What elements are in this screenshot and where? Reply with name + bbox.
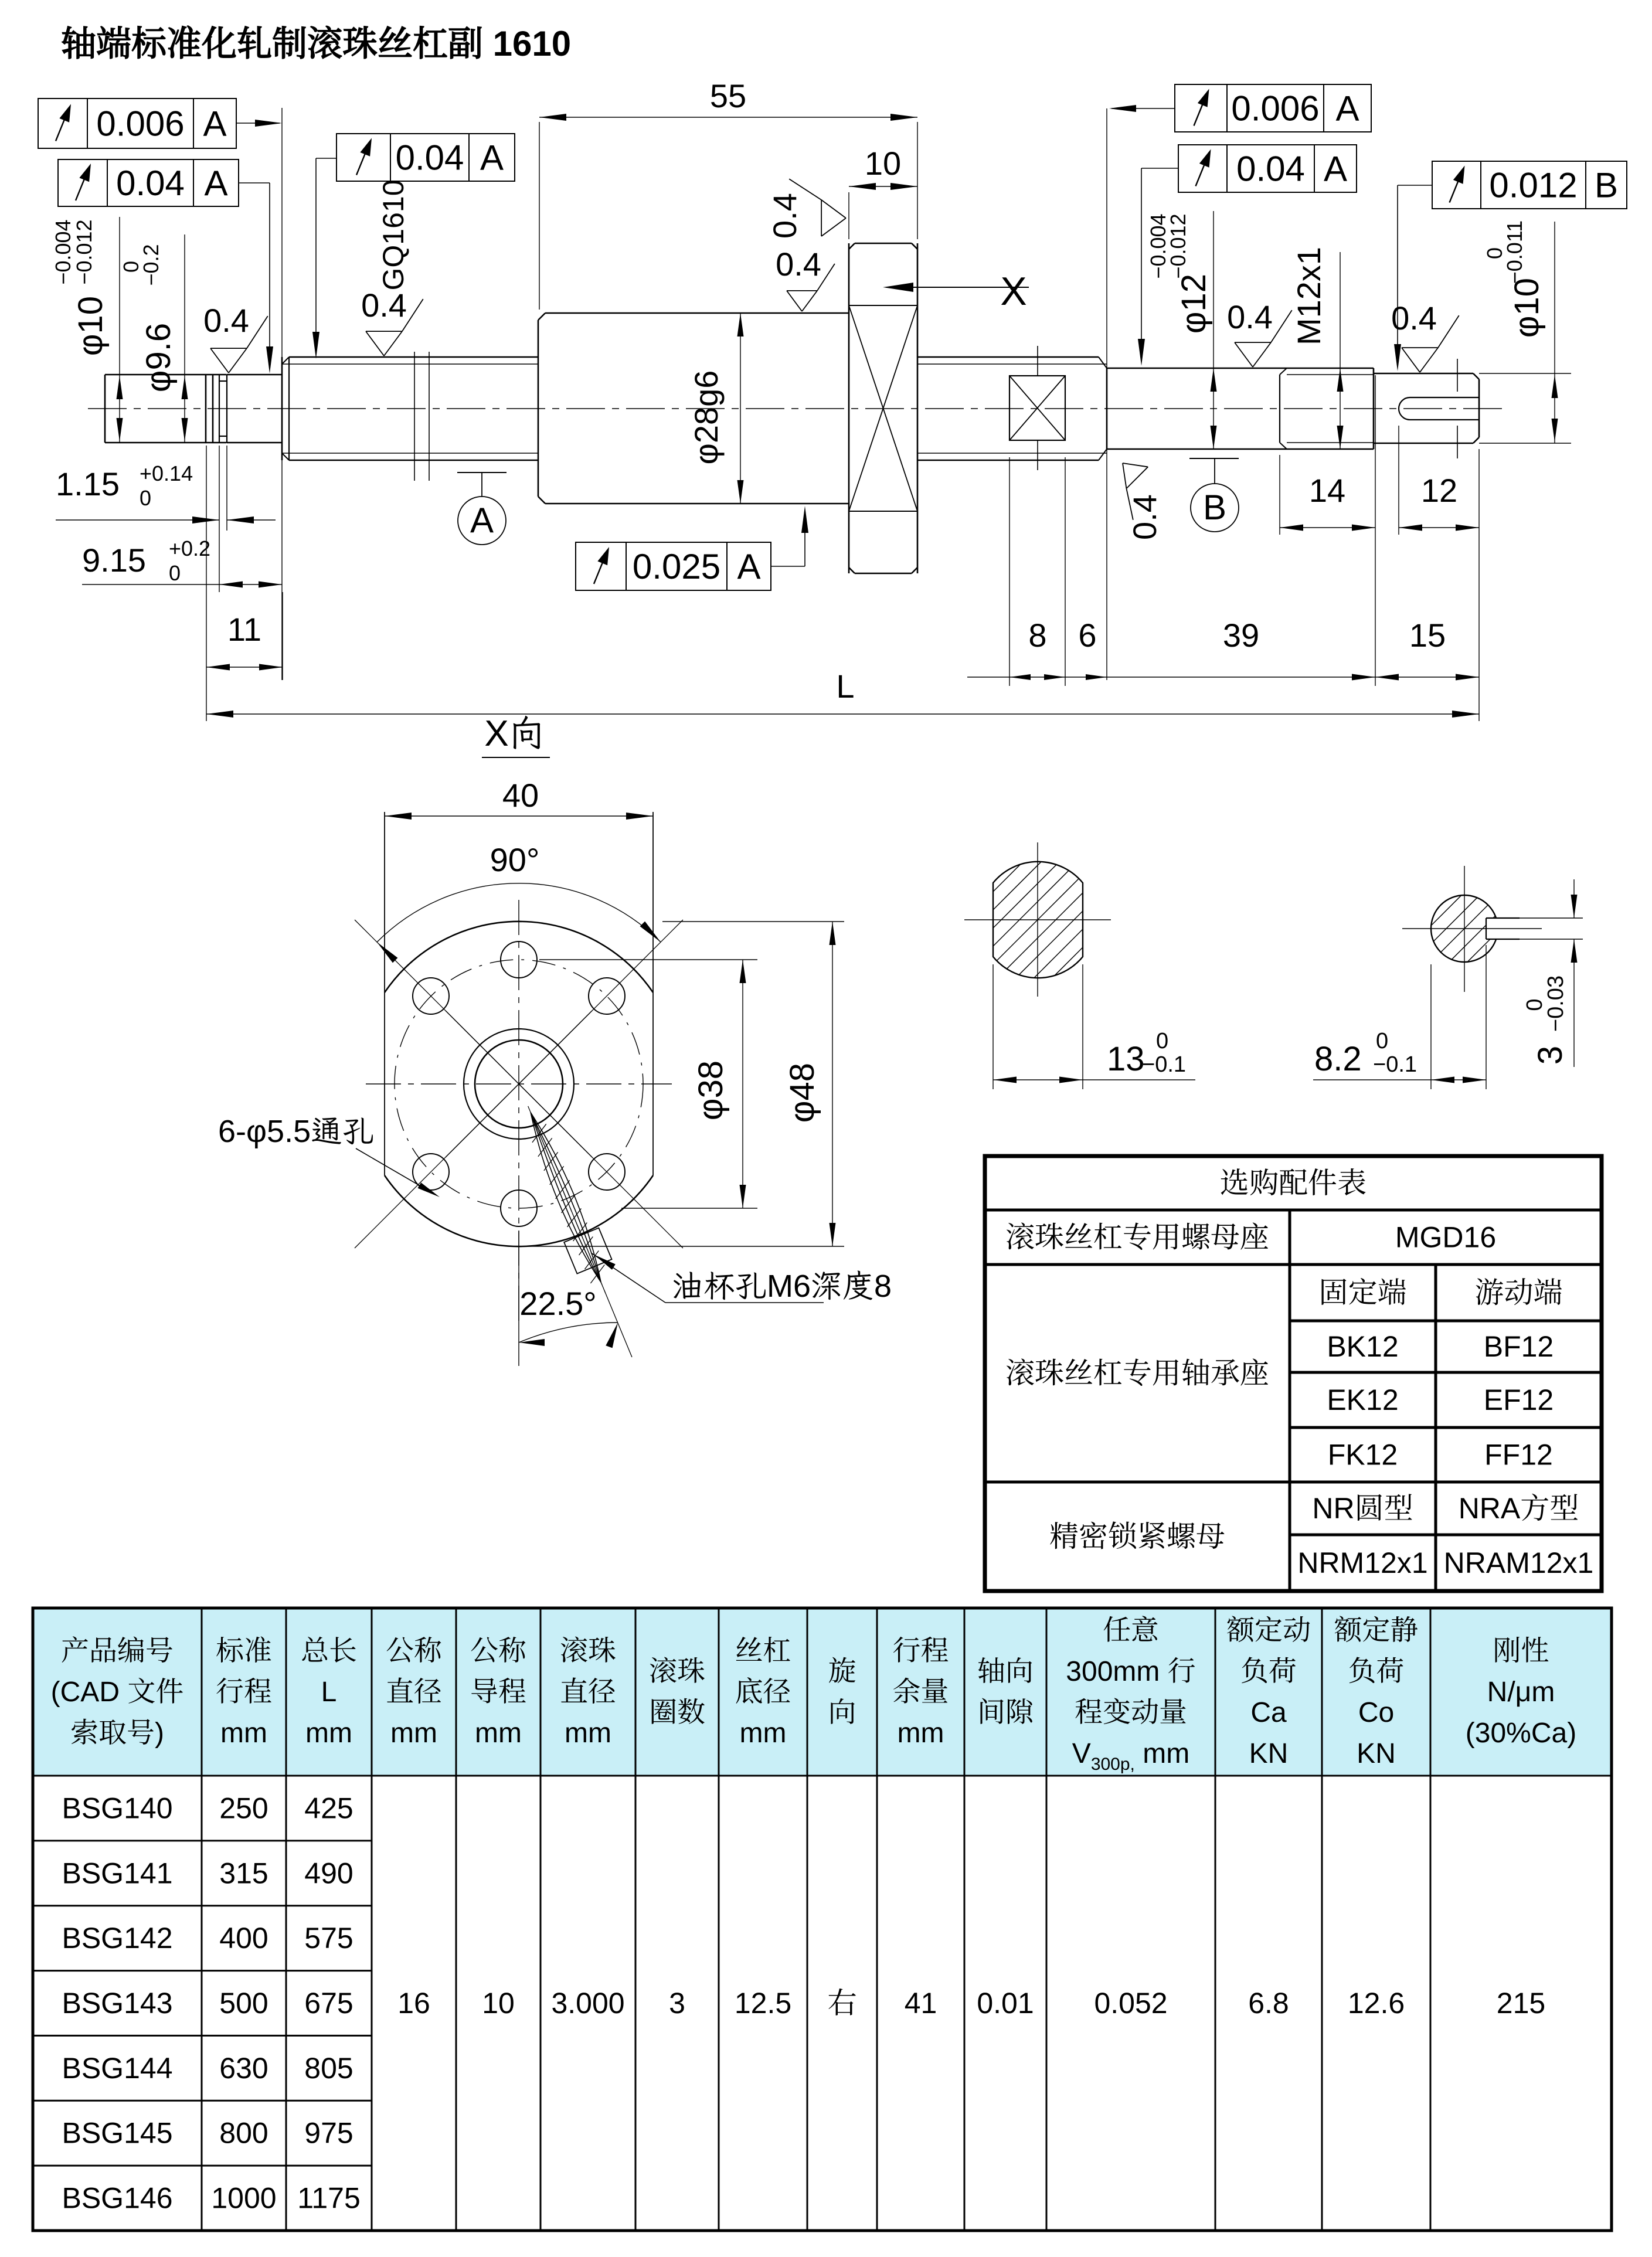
svg-text:630: 630 [219, 2052, 268, 2085]
svg-text:−0.012: −0.012 [72, 219, 96, 284]
svg-text:BSG144: BSG144 [62, 2052, 172, 2085]
svg-text:−0.004: −0.004 [51, 219, 75, 284]
svg-text:mm: mm [305, 1718, 352, 1749]
svg-text:A: A [1335, 89, 1359, 128]
svg-text:0: 0 [1156, 1029, 1168, 1053]
svg-text:B: B [1595, 166, 1618, 205]
svg-text:0.012: 0.012 [1489, 166, 1577, 205]
svg-text:直径: 直径 [386, 1669, 442, 1709]
svg-text:额定动: 额定动 [1226, 1607, 1311, 1648]
svg-text:6: 6 [1078, 617, 1096, 654]
svg-text:刚性: 刚性 [1493, 1628, 1549, 1668]
svg-text:800: 800 [219, 2117, 268, 2150]
svg-text:M12x1: M12x1 [1290, 247, 1327, 345]
svg-text:0.04: 0.04 [396, 138, 464, 178]
svg-text:EK12: EK12 [1327, 1384, 1398, 1416]
svg-text:Co: Co [1358, 1697, 1394, 1728]
svg-text:975: 975 [304, 2117, 353, 2150]
svg-text:程变动量: 程变动量 [1075, 1690, 1187, 1730]
svg-text:任意: 任意 [1103, 1607, 1159, 1648]
svg-text:15: 15 [1409, 617, 1446, 654]
svg-text:BSG142: BSG142 [62, 1922, 172, 1955]
svg-text:12: 12 [1421, 472, 1457, 509]
svg-text:NRM12x1: NRM12x1 [1297, 1546, 1427, 1579]
svg-text:B: B [1203, 488, 1226, 527]
svg-text:0: 0 [140, 486, 151, 510]
svg-text:250: 250 [219, 1792, 268, 1824]
svg-text:公称: 公称 [386, 1628, 442, 1668]
svg-text:圈数: 圈数 [649, 1690, 705, 1730]
svg-text:滚珠: 滚珠 [649, 1648, 705, 1689]
svg-text:总长: 总长 [301, 1628, 357, 1668]
svg-text:φ12: φ12 [1175, 274, 1213, 334]
svg-text:10: 10 [482, 1987, 515, 2020]
svg-text:16: 16 [397, 1987, 430, 2020]
svg-text:mm: mm [390, 1718, 437, 1749]
svg-text:KN: KN [1357, 1738, 1396, 1769]
svg-text:旋: 旋 [828, 1648, 856, 1689]
svg-text:0.4: 0.4 [1227, 298, 1273, 335]
svg-text:0: 0 [1376, 1029, 1388, 1053]
svg-text:直径: 直径 [560, 1669, 616, 1709]
svg-text:41: 41 [905, 1987, 937, 2020]
svg-text:90°: 90° [490, 841, 540, 878]
svg-text:0: 0 [169, 561, 181, 585]
svg-text:−0.1: −0.1 [1142, 1052, 1186, 1077]
svg-text:BSG141: BSG141 [62, 1857, 172, 1889]
svg-text:间隙: 间隙 [977, 1690, 1034, 1730]
svg-text:行程: 行程 [892, 1628, 949, 1668]
svg-text:BSG140: BSG140 [62, 1792, 172, 1824]
svg-text:索取号): 索取号) [70, 1710, 164, 1750]
svg-text:9.15: 9.15 [82, 542, 146, 579]
svg-text:315: 315 [219, 1857, 268, 1889]
svg-text:−0.03: −0.03 [1544, 975, 1568, 1032]
svg-text:游动端: 游动端 [1475, 1269, 1563, 1311]
svg-text:mm: mm [898, 1718, 944, 1749]
svg-text:精密锁紧螺母: 精密锁紧螺母 [1049, 1513, 1225, 1555]
svg-text:滚珠丝杠专用轴承座: 滚珠丝杠专用轴承座 [1005, 1350, 1269, 1392]
svg-text:A: A [204, 164, 227, 203]
svg-text:0.006: 0.006 [96, 104, 184, 144]
svg-text:0.4: 0.4 [203, 302, 249, 339]
svg-text:负荷: 负荷 [1240, 1648, 1297, 1689]
svg-text:KN: KN [1249, 1738, 1289, 1769]
svg-text:13: 13 [1107, 1040, 1145, 1078]
svg-text:BSG146: BSG146 [62, 2182, 172, 2215]
svg-text:轴向: 轴向 [977, 1648, 1034, 1689]
svg-text:10: 10 [865, 145, 901, 182]
svg-text:丝杠: 丝杠 [735, 1628, 791, 1668]
svg-text:39: 39 [1223, 617, 1259, 654]
svg-text:0.052: 0.052 [1094, 1987, 1167, 2020]
svg-text:0.01: 0.01 [977, 1987, 1034, 2020]
svg-text:EF12: EF12 [1484, 1384, 1554, 1416]
svg-text:φ38: φ38 [692, 1060, 730, 1120]
svg-text:固定端: 固定端 [1319, 1269, 1407, 1311]
svg-text:55: 55 [710, 77, 746, 114]
svg-text:0.4: 0.4 [776, 246, 821, 283]
svg-text:mm: mm [565, 1718, 611, 1749]
svg-text:6.8: 6.8 [1248, 1987, 1289, 2020]
svg-text:油杯孔M6深度8: 油杯孔M6深度8 [672, 1265, 892, 1306]
svg-text:A: A [480, 138, 504, 178]
svg-text:0.4: 0.4 [1126, 494, 1163, 540]
svg-text:22.5°: 22.5° [519, 1285, 596, 1322]
svg-text:−0.011: −0.011 [1503, 220, 1527, 284]
svg-text:+0.14: +0.14 [140, 461, 193, 485]
svg-text:575: 575 [304, 1922, 353, 1955]
svg-text:FK12: FK12 [1328, 1439, 1398, 1471]
svg-text:滚珠: 滚珠 [560, 1628, 616, 1668]
svg-text:3: 3 [669, 1987, 685, 2020]
svg-text:A: A [470, 501, 494, 540]
svg-text:0.04: 0.04 [116, 164, 185, 203]
svg-text:φ48: φ48 [783, 1063, 821, 1123]
svg-text:标准: 标准 [216, 1628, 272, 1668]
svg-text:12.5: 12.5 [735, 1987, 791, 2020]
svg-text:1000: 1000 [211, 2182, 276, 2215]
svg-text:φ10: φ10 [1508, 278, 1546, 338]
svg-text:(30%Ca): (30%Ca) [1466, 1718, 1576, 1749]
svg-text:3.000: 3.000 [551, 1987, 624, 2020]
svg-text:805: 805 [304, 2052, 353, 2085]
svg-text:X向: X向 [484, 708, 545, 756]
svg-text:BSG145: BSG145 [62, 2117, 172, 2150]
svg-text:NRAM12x1: NRAM12x1 [1444, 1546, 1594, 1579]
svg-text:3: 3 [1531, 1046, 1569, 1065]
svg-text:−0.012: −0.012 [1166, 213, 1190, 278]
svg-text:0.4: 0.4 [1391, 300, 1437, 336]
svg-text:右: 右 [828, 1980, 857, 2022]
svg-text:mm: mm [475, 1718, 522, 1749]
svg-text:FF12: FF12 [1484, 1439, 1553, 1471]
svg-text:负荷: 负荷 [1348, 1648, 1404, 1689]
svg-text:8.2: 8.2 [1314, 1040, 1362, 1078]
svg-text:12.6: 12.6 [1348, 1987, 1405, 2020]
svg-text:+0.2: +0.2 [169, 536, 210, 560]
svg-text:0.006: 0.006 [1231, 89, 1319, 128]
svg-text:φ10: φ10 [72, 296, 110, 356]
svg-text:MGD16: MGD16 [1395, 1221, 1496, 1254]
svg-text:Ca: Ca [1250, 1697, 1287, 1728]
svg-text:400: 400 [219, 1922, 268, 1955]
svg-text:500: 500 [219, 1987, 268, 2020]
svg-text:−0.2: −0.2 [139, 244, 163, 285]
svg-text:BF12: BF12 [1484, 1330, 1554, 1363]
svg-text:mm: mm [220, 1718, 267, 1749]
svg-text:40: 40 [502, 777, 539, 814]
svg-text:GQ1610: GQ1610 [377, 179, 410, 290]
svg-text:425: 425 [304, 1792, 353, 1824]
svg-text:215: 215 [1497, 1987, 1545, 2020]
svg-text:φ28g6: φ28g6 [688, 370, 725, 465]
svg-text:0.025: 0.025 [633, 547, 720, 586]
svg-text:0.4: 0.4 [766, 193, 803, 239]
svg-text:6-φ5.5通孔: 6-φ5.5通孔 [218, 1110, 374, 1151]
svg-text:8: 8 [1028, 617, 1046, 654]
svg-text:490: 490 [304, 1857, 353, 1889]
svg-text:11: 11 [227, 611, 261, 648]
svg-text:公称: 公称 [470, 1628, 526, 1668]
svg-text:N/μm: N/μm [1487, 1677, 1555, 1708]
svg-text:1.15: 1.15 [56, 465, 120, 502]
svg-text:向: 向 [828, 1690, 856, 1730]
svg-text:选购配件表: 选购配件表 [1220, 1160, 1367, 1202]
svg-text:额定静: 额定静 [1334, 1607, 1418, 1648]
svg-text:675: 675 [304, 1987, 353, 2020]
svg-text:−0.1: −0.1 [1373, 1052, 1417, 1077]
svg-text:L: L [321, 1677, 337, 1708]
svg-text:14: 14 [1309, 472, 1345, 509]
svg-text:行程: 行程 [216, 1669, 272, 1709]
svg-text:底径: 底径 [735, 1669, 791, 1709]
svg-text:0.4: 0.4 [361, 287, 407, 324]
svg-text:导程: 导程 [470, 1669, 526, 1709]
svg-text:1175: 1175 [297, 2182, 361, 2215]
svg-text:A: A [737, 547, 760, 586]
svg-text:BK12: BK12 [1327, 1330, 1398, 1363]
svg-text:mm: mm [740, 1718, 787, 1749]
svg-text:0.04: 0.04 [1236, 149, 1305, 189]
svg-text:φ9.6: φ9.6 [140, 323, 178, 392]
svg-text:余量: 余量 [892, 1669, 949, 1709]
svg-text:滚珠丝杠专用螺母座: 滚珠丝杠专用螺母座 [1005, 1214, 1269, 1256]
svg-text:A: A [203, 104, 226, 144]
svg-text:A: A [1324, 149, 1347, 189]
svg-text:BSG143: BSG143 [62, 1987, 172, 2020]
svg-text:L: L [836, 668, 854, 705]
svg-text:产品编号: 产品编号 [61, 1628, 174, 1668]
svg-text:X: X [1000, 269, 1026, 314]
